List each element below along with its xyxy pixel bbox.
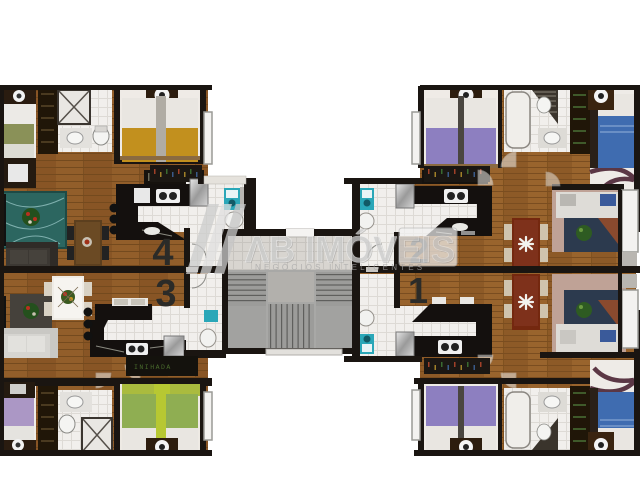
svg-text:1: 1 — [408, 270, 428, 311]
svg-text:INIHADA: INIHADA — [134, 364, 172, 371]
svg-text:NEGÓCIOS INTELIGENTES: NEGÓCIOS INTELIGENTES — [255, 263, 425, 272]
svg-text:3: 3 — [155, 273, 176, 315]
svg-text:4: 4 — [152, 232, 173, 274]
